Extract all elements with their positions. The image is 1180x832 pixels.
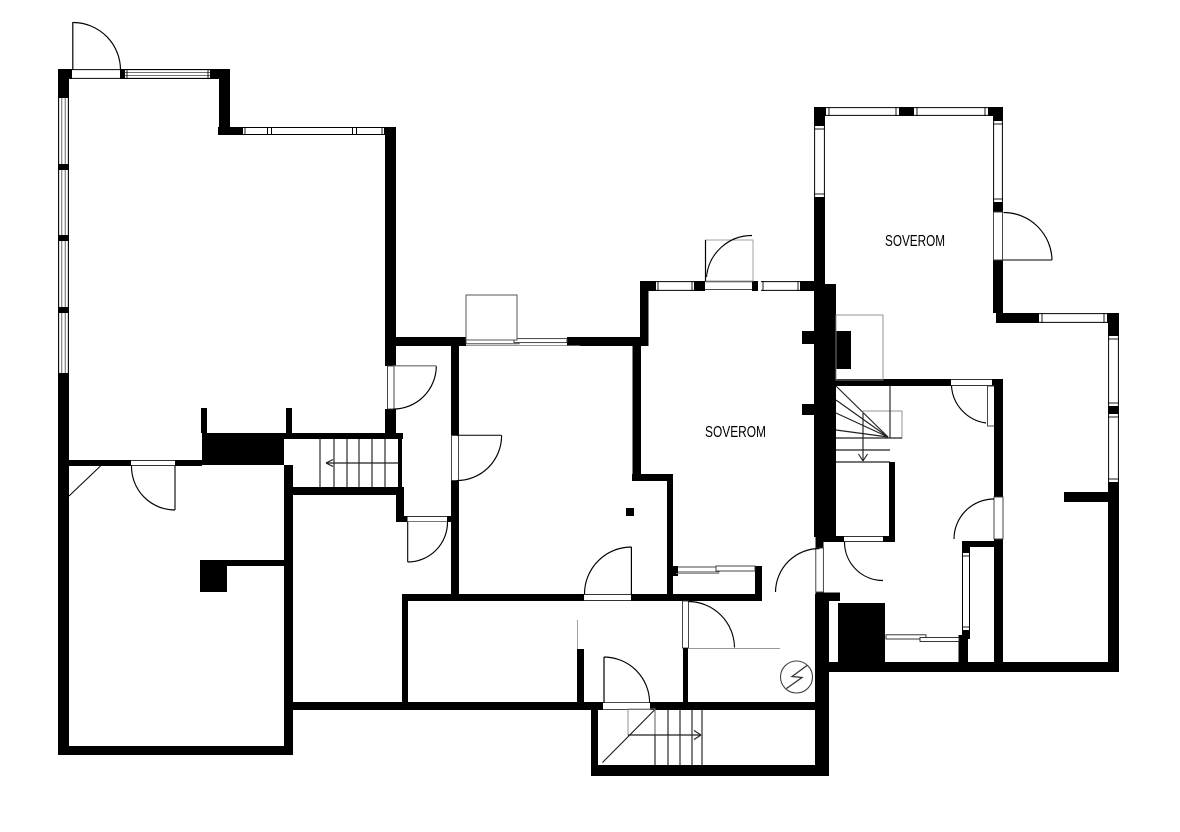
svg-text:SOVEROM: SOVEROM — [885, 233, 945, 250]
svg-text:SOVEROM: SOVEROM — [705, 424, 766, 441]
